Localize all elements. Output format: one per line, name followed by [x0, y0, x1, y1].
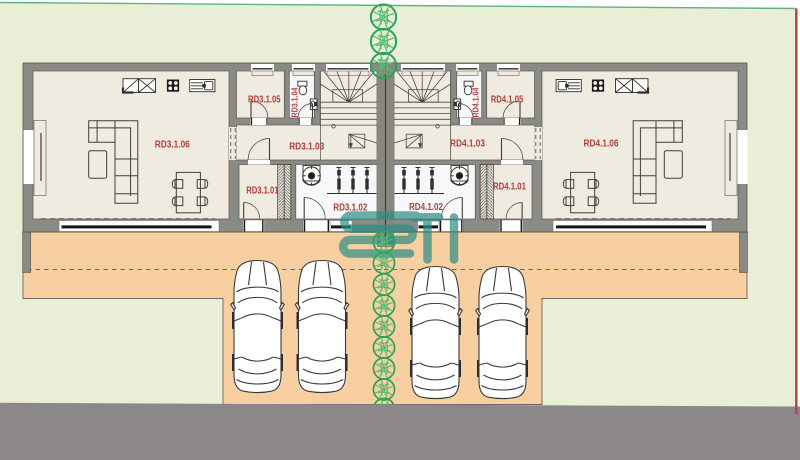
svg-text:RD3.1.04: RD3.1.04	[290, 87, 300, 117]
svg-text:RD4.1.01: RD4.1.01	[493, 182, 526, 193]
svg-text:RD4.1.06: RD4.1.06	[584, 139, 619, 150]
svg-text:RD4.1.04: RD4.1.04	[471, 87, 481, 117]
svg-text:RD3.1.03: RD3.1.03	[289, 142, 324, 153]
svg-text:RD3.1.01: RD3.1.01	[246, 186, 279, 197]
svg-text:RD4.1.05: RD4.1.05	[491, 94, 524, 105]
svg-text:RD4.1.03: RD4.1.03	[450, 139, 485, 150]
svg-text:RD3.1.05: RD3.1.05	[248, 94, 281, 105]
svg-text:RD3.1.06: RD3.1.06	[155, 140, 190, 151]
